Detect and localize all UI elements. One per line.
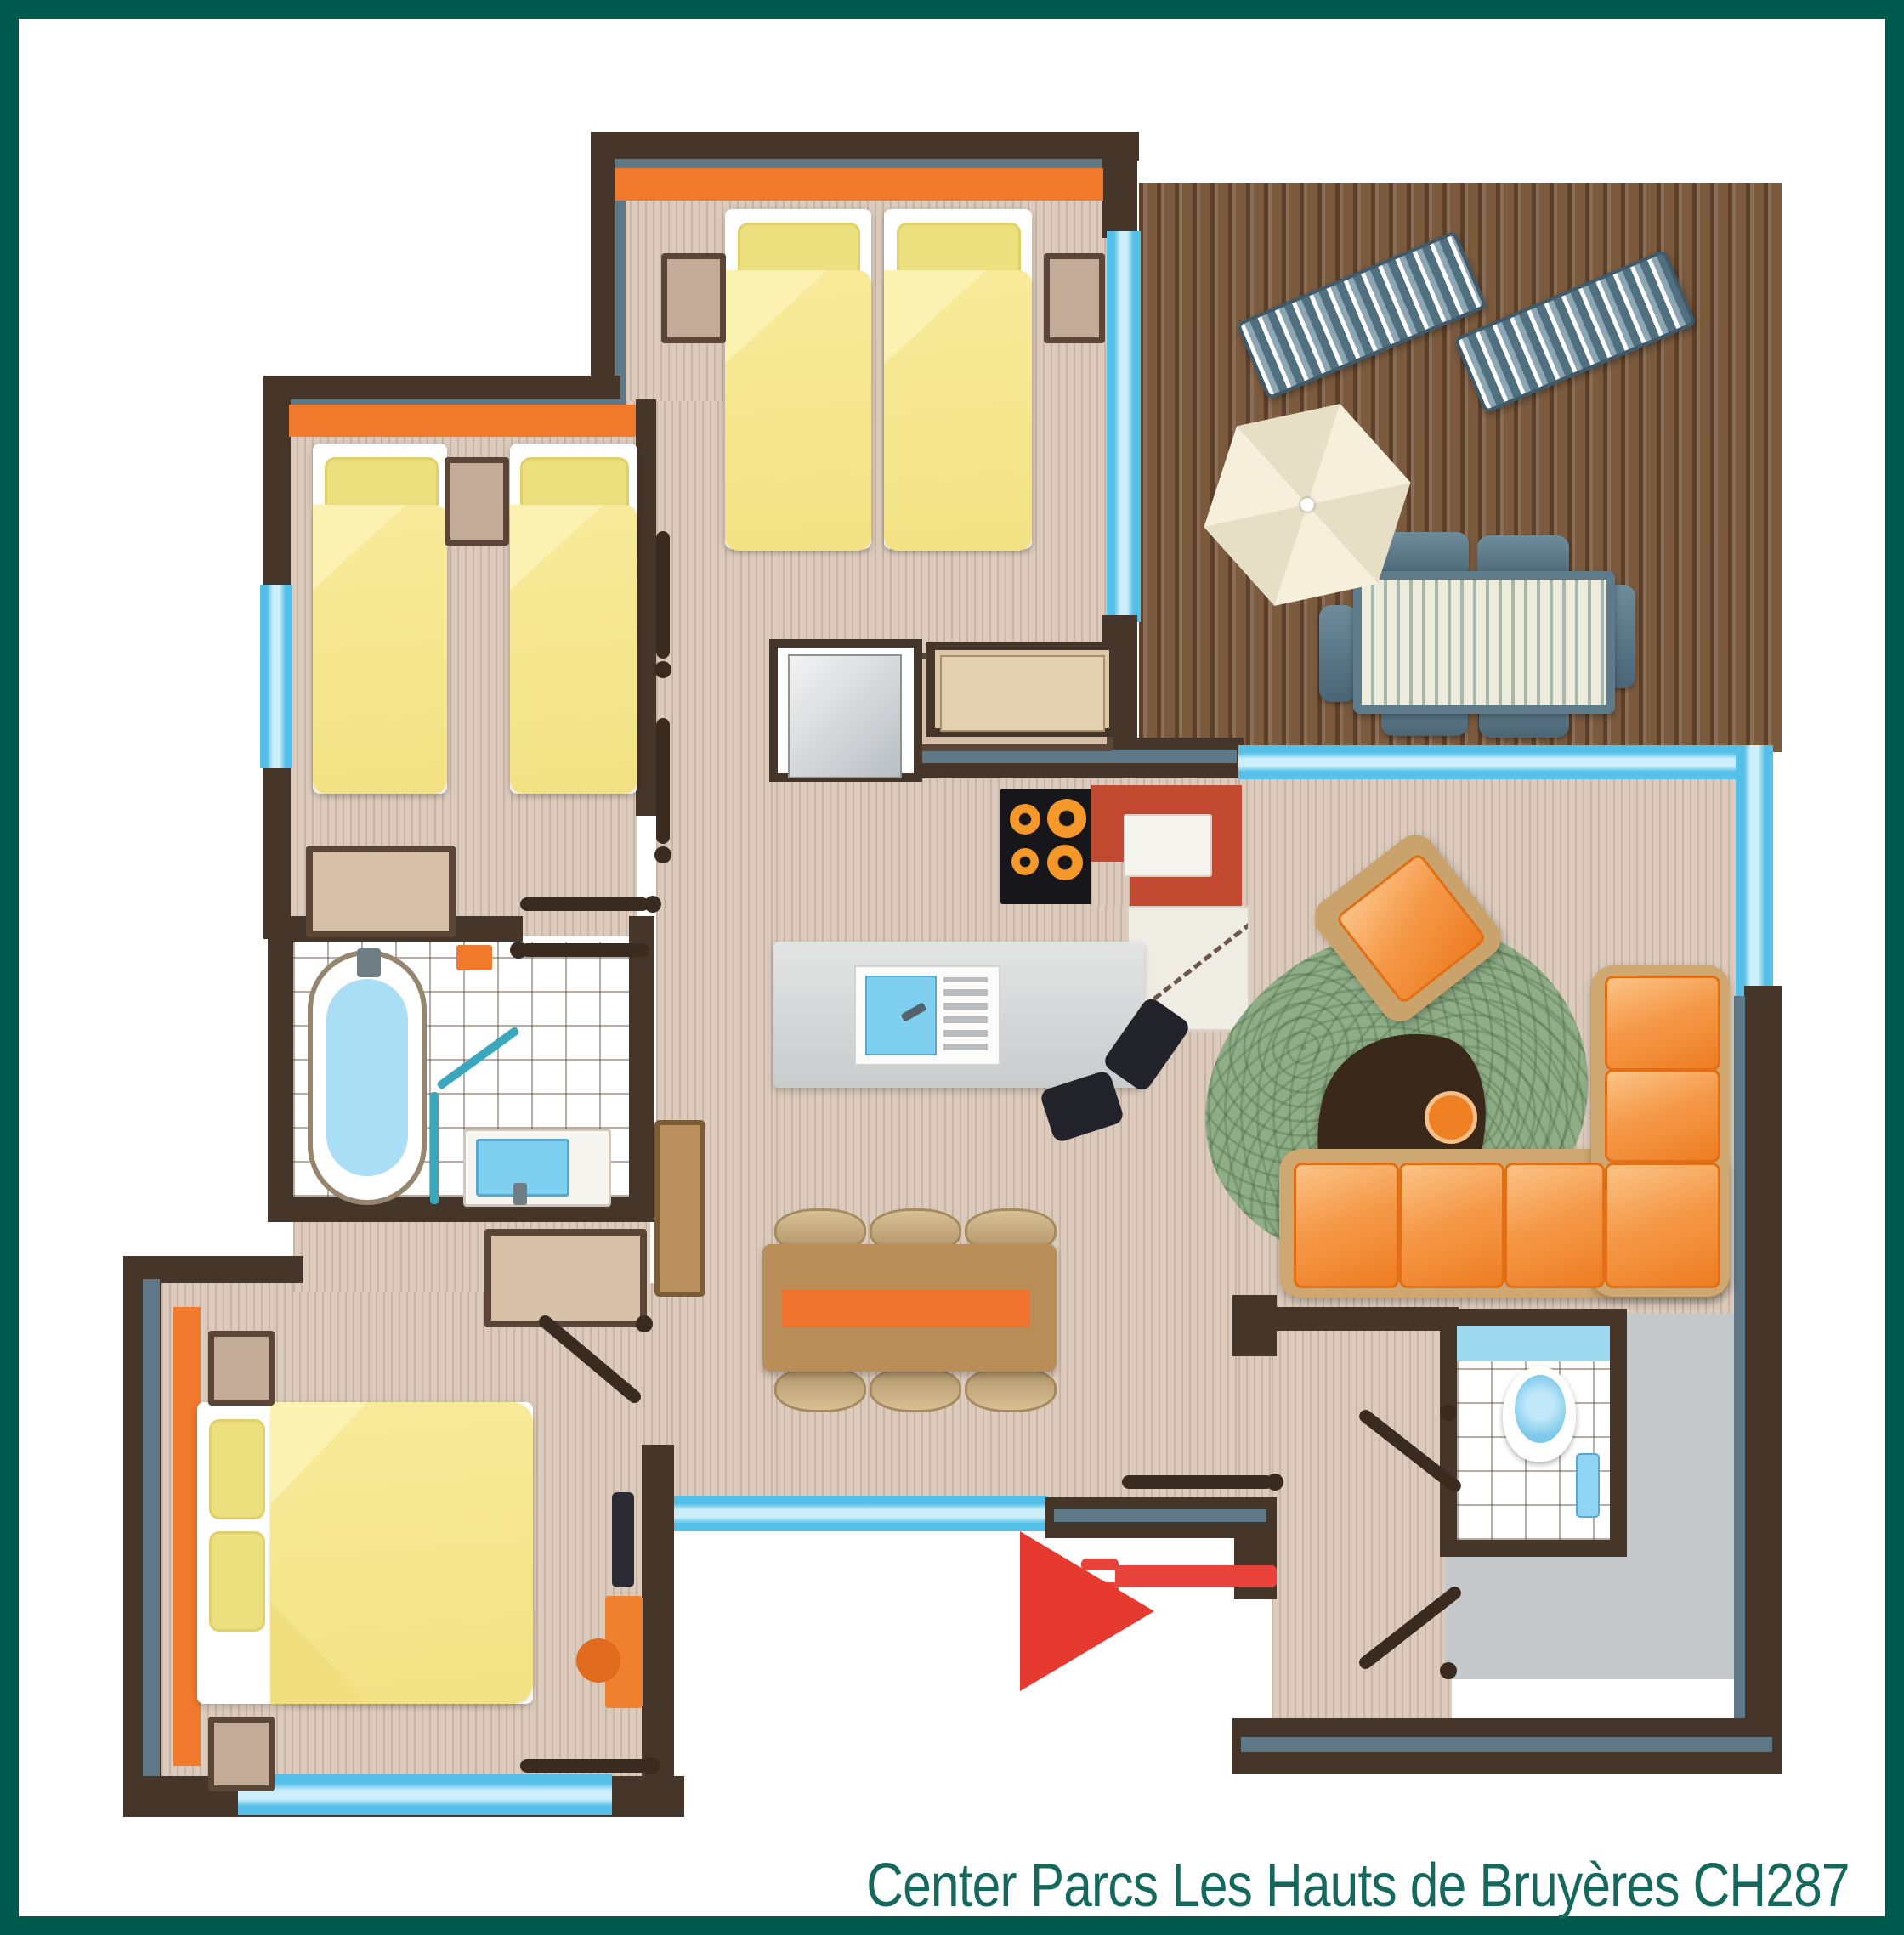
bedroom3-tv-icon bbox=[612, 1492, 634, 1587]
hallway-floor bbox=[656, 401, 779, 1506]
storage-door-hinge bbox=[1440, 1662, 1457, 1679]
bathroom-door-hinge-2 bbox=[510, 942, 527, 959]
wall-bedroom1-top bbox=[591, 132, 1139, 161]
bedroom1-door-hinge bbox=[654, 661, 671, 678]
bedroom3-nightstand-top bbox=[208, 1331, 275, 1406]
sofa-cushion-2 bbox=[1399, 1163, 1504, 1288]
bed2a-fold bbox=[313, 505, 406, 590]
hall-door-hinge bbox=[1266, 1474, 1283, 1491]
red-counter-appliance bbox=[1124, 814, 1212, 877]
bedroom2-door-hinge bbox=[654, 846, 671, 863]
burner-4 bbox=[1047, 845, 1083, 880]
bath-faucet-icon bbox=[357, 948, 381, 977]
wall-bedroom1-right-upper bbox=[1102, 157, 1137, 238]
wc-bottle bbox=[1576, 1453, 1600, 1518]
bed3-pillow-top bbox=[209, 1419, 265, 1519]
sofa-cushion-v2 bbox=[1605, 1069, 1720, 1163]
bedroom1-window bbox=[1107, 231, 1141, 622]
wall-bedroom3-right bbox=[642, 1445, 674, 1812]
hall-door-leaf-open bbox=[1122, 1475, 1273, 1489]
burner-2 bbox=[1047, 799, 1086, 838]
dining-chair-bottom-3 bbox=[965, 1366, 1057, 1412]
shower-screen-vertical bbox=[430, 1092, 439, 1204]
bedroom2-headboard-strip bbox=[289, 405, 636, 437]
bed3-fold-bottom bbox=[270, 1602, 368, 1704]
bedroom2-dresser bbox=[306, 846, 456, 937]
bed1b-fold bbox=[884, 270, 986, 364]
burner-3 bbox=[1011, 848, 1039, 875]
sofa-cushion-3 bbox=[1504, 1163, 1605, 1288]
bed3-pillow-bottom bbox=[209, 1531, 265, 1632]
wall-accent-living-right bbox=[1734, 996, 1745, 1727]
bedroom2-window bbox=[260, 585, 292, 768]
floor-plan-page: Center Parcs Les Hauts de Bruyères CH287 bbox=[0, 0, 1904, 1935]
parasol-pole bbox=[1300, 498, 1314, 512]
island-drainboard bbox=[943, 977, 988, 1050]
bathroom-door-leaf bbox=[520, 943, 649, 957]
sofa-cushion-1 bbox=[1294, 1163, 1399, 1288]
patio-chair-left bbox=[1319, 605, 1357, 702]
table-runner bbox=[782, 1290, 1030, 1327]
bathroom-door-hinge-1 bbox=[644, 896, 661, 913]
wall-accent-bottom-right bbox=[1241, 1737, 1772, 1752]
wall-hall-top bbox=[1272, 1307, 1459, 1331]
entrance-arrow-icon bbox=[1020, 1531, 1154, 1691]
dining-chair-bottom-2 bbox=[870, 1366, 961, 1412]
wc-door-hinge bbox=[1440, 1404, 1457, 1421]
burner-1 bbox=[1010, 804, 1040, 835]
kitchen-counter-top bbox=[926, 642, 1118, 737]
plan-caption: Center Parcs Les Hauts de Bruyères CH287 bbox=[867, 1851, 1850, 1921]
corner-door-leaf bbox=[520, 1759, 648, 1773]
wall-living-right bbox=[1744, 986, 1782, 1774]
bathroom-door-leaf-open bbox=[520, 897, 649, 911]
corner-door-hinge bbox=[643, 1757, 660, 1774]
stove-icon bbox=[1000, 789, 1093, 904]
wc-room bbox=[1440, 1309, 1627, 1557]
bedroom2-door-leaf bbox=[656, 718, 670, 844]
entry-window bbox=[674, 1496, 1048, 1531]
fridge-icon bbox=[769, 639, 922, 782]
sofa-cushion-v1 bbox=[1605, 976, 1720, 1071]
coffee-table-bowl bbox=[1425, 1091, 1477, 1144]
wall-bathroom-left bbox=[268, 916, 293, 1222]
bedroom1-door-leaf bbox=[656, 531, 670, 659]
bath-mat bbox=[456, 945, 492, 970]
bedroom3-desk-chair bbox=[576, 1638, 620, 1683]
wall-bedroom2-left-upper bbox=[263, 376, 291, 588]
living-window-right bbox=[1736, 745, 1773, 996]
wall-accent-entry bbox=[1054, 1509, 1266, 1522]
dining-chair-bottom-1 bbox=[774, 1366, 866, 1412]
hall-wardrobe bbox=[654, 1120, 705, 1297]
bedroom1-headboard-strip bbox=[615, 168, 1103, 201]
bedroom2-nightstand bbox=[445, 457, 509, 546]
bedroom1-nightstand-left bbox=[661, 253, 726, 343]
bedroom3-door-hinge bbox=[636, 1315, 653, 1332]
bed1a-fold bbox=[725, 270, 827, 364]
fridge-front bbox=[788, 654, 902, 778]
wall-bedroom2-left-lower bbox=[263, 765, 291, 939]
bedroom1-nightstand-right bbox=[1044, 253, 1105, 343]
sink-faucet-icon bbox=[513, 1183, 527, 1205]
bed3-fold-top bbox=[270, 1402, 368, 1504]
sofa-cushion-corner bbox=[1605, 1163, 1720, 1288]
bed2b-fold bbox=[510, 505, 603, 590]
bedroom3-dresser bbox=[484, 1229, 647, 1327]
patio-table bbox=[1353, 571, 1615, 714]
bedroom3-nightstand-bottom bbox=[208, 1717, 275, 1791]
wc-window bbox=[1457, 1326, 1610, 1361]
toilet-lid bbox=[1515, 1375, 1566, 1443]
wall-accent-bedroom3-left bbox=[143, 1279, 160, 1789]
bedroom3-window bbox=[238, 1774, 612, 1815]
living-window-top bbox=[1238, 745, 1748, 779]
wall-between-bedrooms bbox=[636, 399, 656, 816]
wall-bathroom-right bbox=[629, 916, 654, 1222]
wall-hall-stub bbox=[1232, 1295, 1277, 1356]
bathtub-water bbox=[326, 979, 408, 1176]
kitchen-counter-inner bbox=[940, 655, 1105, 732]
